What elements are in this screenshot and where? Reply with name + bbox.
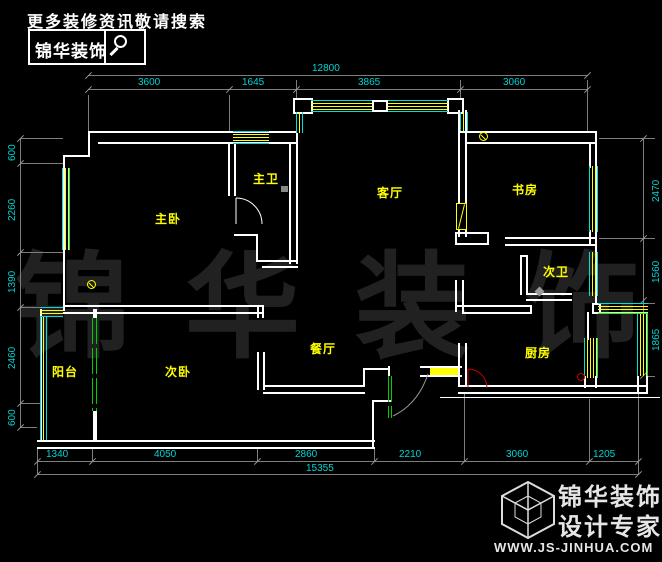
room-label-living-room: 客厅 bbox=[377, 184, 403, 201]
room-label-master-bath: 主卫 bbox=[253, 170, 279, 187]
floorplan-canvas: 锦华装饰 更多装修资讯敬请搜索 锦华装饰 bbox=[0, 0, 662, 562]
room-label-study: 书房 bbox=[512, 181, 538, 198]
room-label-second-bath: 次卫 bbox=[543, 263, 569, 280]
cube-logo-icon bbox=[500, 480, 556, 540]
room-label-balcony: 阳台 bbox=[52, 363, 78, 380]
footer-subtitle: 设计专家 bbox=[558, 507, 662, 542]
room-label-kitchen: 厨房 bbox=[525, 344, 551, 361]
room-label-dining-room: 餐厅 bbox=[310, 340, 336, 357]
footer-website: WWW.JS-JINHUA.COM bbox=[494, 540, 653, 555]
room-label-second-bedroom: 次卧 bbox=[165, 363, 191, 380]
room-label-master-bedroom: 主卧 bbox=[155, 210, 181, 227]
